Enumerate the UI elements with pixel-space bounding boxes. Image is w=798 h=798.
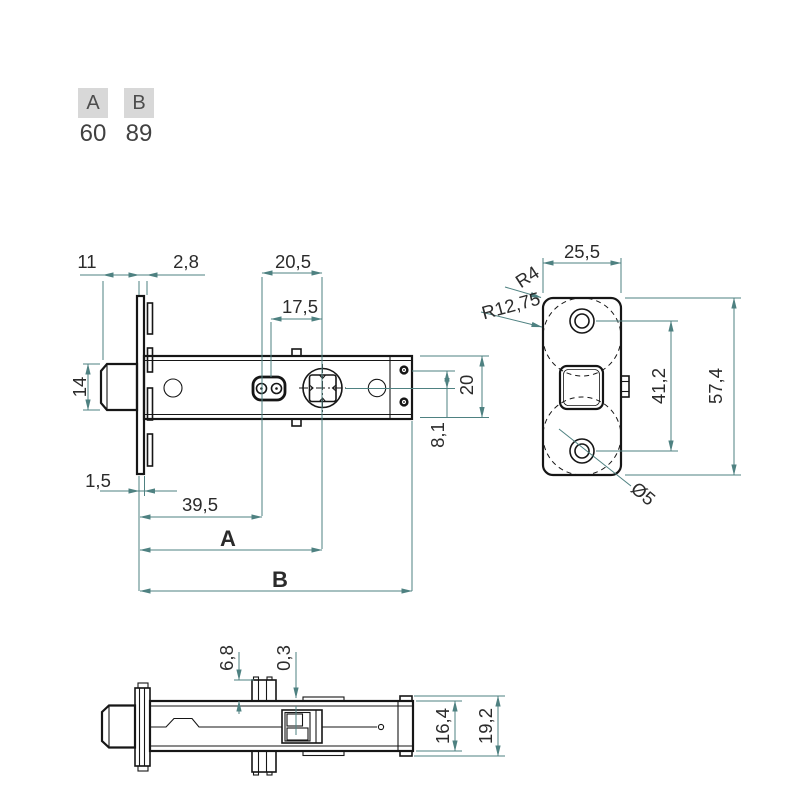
dim-20-5: 20,5 [275, 251, 311, 272]
latch-bolt [101, 364, 137, 410]
dim-R4: R4 [512, 261, 543, 291]
front-view-dimensions: 25,5 R4 R12,75 41,2 57,4 Ø5 [479, 241, 741, 510]
dim-R12-75: R12,75 [479, 288, 542, 324]
faceplate-front [543, 298, 621, 475]
side-view-dimensions: 11 2,8 20,5 17,5 14 1,5 39,5 A B [69, 251, 489, 592]
dim-19-2: 19,2 [475, 708, 496, 744]
side-view [101, 296, 412, 474]
case-hole-left [164, 379, 182, 397]
pin-hole [378, 724, 383, 729]
dim-2-8: 2,8 [173, 251, 199, 272]
screw-lug-bottom [252, 751, 276, 775]
dim-8-1: 8,1 [427, 422, 448, 448]
dim-11: 11 [77, 251, 96, 272]
end-tab-top [400, 696, 412, 701]
screw-hole-bottom [570, 439, 594, 463]
end-tab-bottom [400, 751, 412, 756]
bolt-plan [102, 706, 135, 748]
dim-16-4: 16,4 [432, 708, 453, 744]
faceplate-plan [135, 683, 150, 771]
dim-dia5: Ø5 [627, 478, 659, 510]
dim-B: B [272, 567, 288, 592]
dim-17-5: 17,5 [282, 296, 318, 317]
dim-57-4: 57,4 [705, 368, 726, 404]
dim-20: 20 [456, 375, 477, 396]
dim-0-3: 0,3 [273, 645, 294, 671]
guide-slot [150, 719, 282, 728]
bottom-view [102, 677, 413, 775]
case-edge-tab [621, 376, 629, 397]
dim-1-5: 1,5 [85, 470, 111, 491]
follower-block-plan [282, 710, 322, 743]
bolt-opening [560, 366, 603, 409]
latch-technical-drawing: A 60 B 89 [0, 0, 798, 798]
dim-25-5: 25,5 [564, 241, 600, 262]
latch-case [144, 356, 412, 419]
drawing-canvas: 11 2,8 20,5 17,5 14 1,5 39,5 A B [0, 0, 798, 798]
front-view [543, 298, 629, 475]
case-screw-top [399, 365, 408, 374]
dim-6-8: 6,8 [216, 645, 237, 671]
case-screw-bottom [399, 397, 408, 406]
dim-39-5: 39,5 [182, 494, 218, 515]
dim-14: 14 [69, 377, 90, 398]
dim-A: A [220, 526, 236, 551]
privacy-hub [253, 377, 285, 400]
dim-41-2: 41,2 [648, 368, 669, 404]
screw-hole-top [570, 309, 594, 333]
screw-lug-top [252, 677, 276, 701]
